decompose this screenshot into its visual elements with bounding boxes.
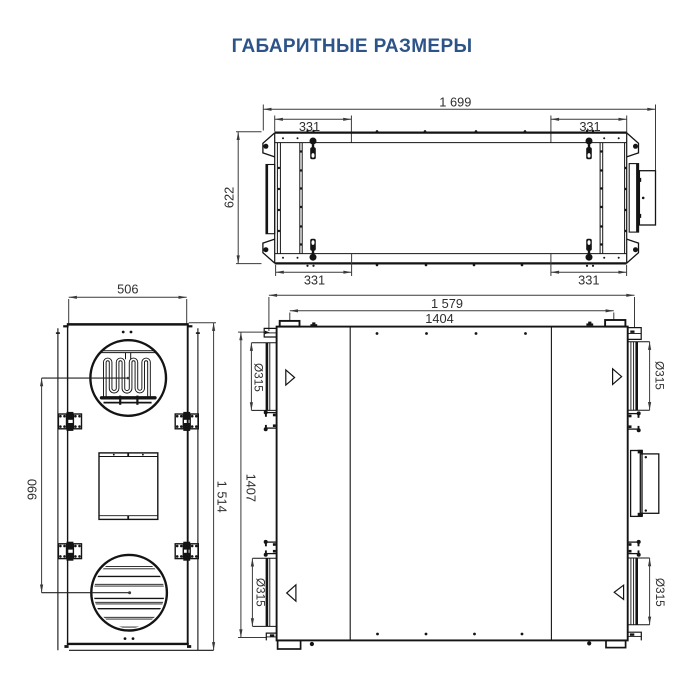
svg-text:331: 331	[578, 273, 599, 288]
svg-text:331: 331	[304, 273, 325, 288]
svg-text:506: 506	[117, 282, 138, 297]
svg-text:990: 990	[25, 479, 40, 500]
svg-text:622: 622	[222, 187, 237, 208]
svg-text:1 579: 1 579	[431, 296, 463, 311]
svg-text:1407: 1407	[243, 474, 258, 502]
svg-text:1 514: 1 514	[214, 481, 229, 513]
svg-text:1404: 1404	[425, 311, 453, 326]
svg-text:Ø315: Ø315	[652, 361, 666, 390]
svg-text:Ø315: Ø315	[253, 578, 267, 607]
svg-text:1 699: 1 699	[439, 95, 471, 110]
svg-text:Ø315: Ø315	[252, 363, 266, 392]
svg-text:Ø315: Ø315	[653, 578, 667, 607]
svg-text:ГАБАРИТНЫЕ РАЗМЕРЫ: ГАБАРИТНЫЕ РАЗМЕРЫ	[232, 36, 473, 57]
